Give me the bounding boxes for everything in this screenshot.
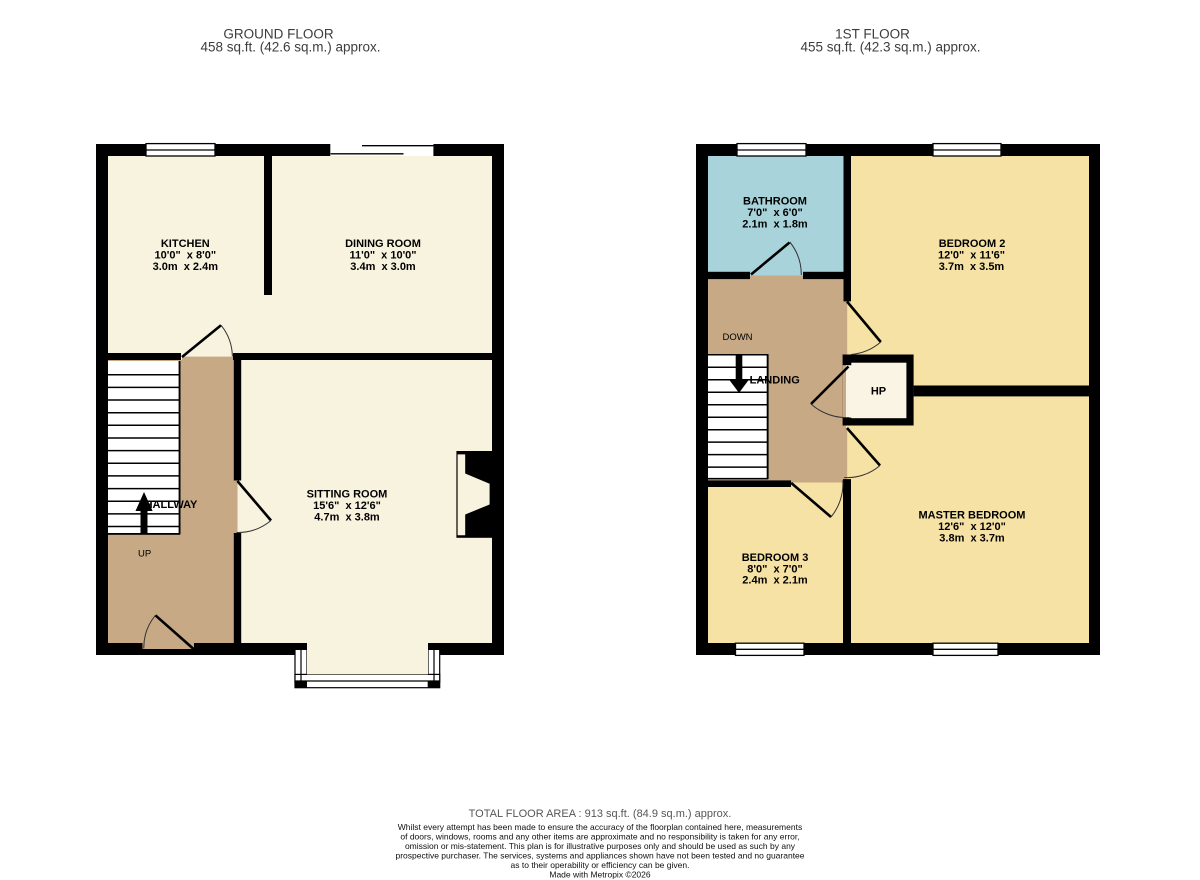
svg-text:HALLWAY: HALLWAY (145, 499, 198, 511)
svg-text:10'0" x 8'0": 10'0" x 8'0" (155, 250, 217, 262)
svg-text:DINING ROOM: DINING ROOM (345, 238, 421, 250)
svg-text:BATHROOM: BATHROOM (743, 196, 807, 208)
svg-text:MASTER BEDROOM: MASTER BEDROOM (919, 510, 1026, 522)
svg-text:455 sq.ft. (42.3 sq.m.) approx: 455 sq.ft. (42.3 sq.m.) approx. (800, 40, 980, 55)
svg-text:BEDROOM 2: BEDROOM 2 (939, 238, 1006, 250)
svg-text:15'6" x 12'6": 15'6" x 12'6" (313, 500, 381, 512)
svg-text:2.4m x 2.1m: 2.4m x 2.1m (742, 575, 808, 587)
svg-text:omission or mis-statement. Thi: omission or mis-statement. This plan is … (405, 841, 796, 851)
svg-text:LANDING: LANDING (750, 375, 800, 387)
svg-text:11'0" x 10'0": 11'0" x 10'0" (349, 250, 416, 262)
svg-text:8'0" x 7'0": 8'0" x 7'0" (747, 563, 802, 575)
svg-text:3.8m x 3.7m: 3.8m x 3.7m (939, 532, 1005, 544)
svg-text:prospective purchaser. The ser: prospective purchaser. The services, sys… (395, 851, 804, 861)
svg-text:of doors, windows, rooms and a: of doors, windows, rooms and any other i… (400, 832, 799, 842)
svg-text:12'0" x 11'6": 12'0" x 11'6" (938, 250, 1005, 262)
svg-text:BEDROOM 3: BEDROOM 3 (742, 552, 809, 564)
svg-text:SITTING ROOM: SITTING ROOM (307, 489, 388, 501)
svg-text:3.7m x 3.5m: 3.7m x 3.5m (939, 261, 1005, 273)
svg-text:Made with Metropix ©2026: Made with Metropix ©2026 (549, 870, 651, 880)
svg-text:458 sq.ft. (42.6 sq.m.) approx: 458 sq.ft. (42.6 sq.m.) approx. (200, 40, 380, 55)
svg-text:12'6" x 12'0": 12'6" x 12'0" (938, 521, 1006, 533)
svg-text:4.7m x 3.8m: 4.7m x 3.8m (314, 511, 380, 523)
svg-text:UP: UP (138, 548, 151, 559)
svg-text:2.1m x 1.8m: 2.1m x 1.8m (742, 218, 808, 230)
svg-text:TOTAL FLOOR AREA : 913 sq.ft.: TOTAL FLOOR AREA : 913 sq.ft. (84.9 sq.m… (469, 808, 732, 820)
svg-text:KITCHEN: KITCHEN (161, 238, 210, 250)
svg-text:3.0m x 2.4m: 3.0m x 2.4m (153, 261, 219, 273)
svg-text:DOWN: DOWN (722, 332, 752, 343)
svg-text:Whilst every attempt has been: Whilst every attempt has been made to en… (398, 822, 802, 832)
svg-text:3.4m x 3.0m: 3.4m x 3.0m (350, 261, 416, 273)
svg-text:as to their operability or eff: as to their operability or efficiency ca… (511, 860, 690, 870)
svg-text:HP: HP (871, 385, 886, 397)
svg-text:7'0" x 6'0": 7'0" x 6'0" (747, 207, 802, 219)
